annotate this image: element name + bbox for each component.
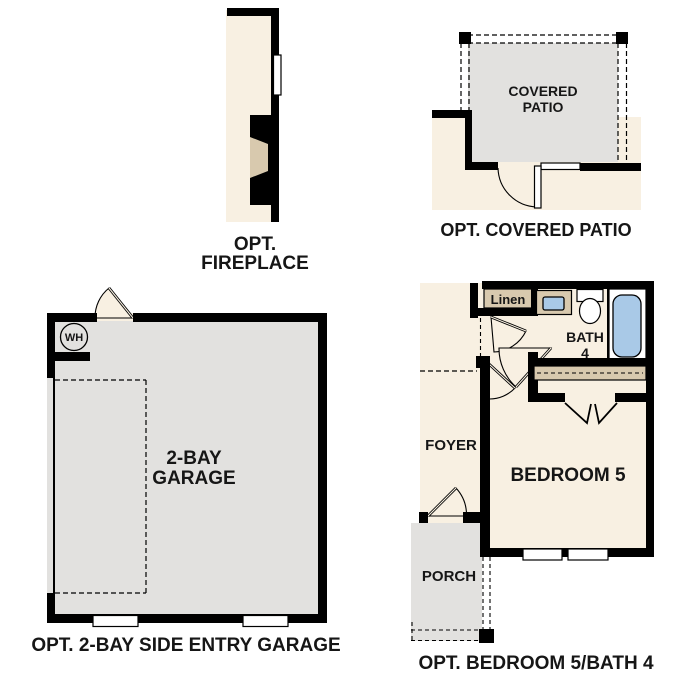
garage-right-wall: [318, 313, 327, 623]
patio-left-wall: [465, 110, 472, 167]
patio-bottom-wall: [580, 163, 641, 171]
water-heater-label: WH: [65, 332, 83, 344]
porch-post: [479, 629, 494, 643]
garage-caption: OPT. 2-BAY SIDE ENTRY GARAGE: [31, 635, 340, 656]
patio-bottom-wall: [465, 162, 498, 170]
wall-stub: [476, 356, 490, 368]
bedroom5-bath4-plan: Linen BATH 4: [411, 281, 654, 674]
garage-left-wall: [47, 313, 55, 378]
foyer-label: FOYER: [425, 437, 477, 454]
floor-plan-canvas: OPT. FIREPLACE COVERED PATIO OPT. COVERE…: [0, 0, 687, 687]
section-top-wall: [482, 281, 654, 289]
fireplace-caption-line1: OPT.: [234, 234, 276, 255]
foyer-wall-stub: [419, 512, 428, 523]
fireplace-caption-line2: FIREPLACE: [201, 253, 309, 274]
linen-label: Linen: [491, 292, 526, 307]
bath-bottom-wall: [528, 358, 650, 366]
bathtub-icon: [613, 295, 641, 357]
bedroom-top-wall: [528, 393, 565, 402]
patio-window-icon: [541, 163, 580, 170]
patio-post-right: [616, 32, 628, 44]
bedroom-caption: OPT. BEDROOM 5/BATH 4: [418, 653, 653, 674]
foyer-wall-stub: [463, 512, 482, 523]
bath-label-line1: BATH: [566, 329, 604, 345]
garage-plan: WH 2-BAY GARAGE OPT. 2-BAY SIDE ENTRY GA…: [31, 288, 340, 656]
garage-left-wall: [47, 593, 55, 623]
patio-post-left: [459, 32, 471, 44]
floor-plan-options-sheet: OPT. FIREPLACE COVERED PATIO OPT. COVERE…: [0, 0, 687, 687]
fireplace-window-icon: [274, 55, 282, 95]
garage-window-icon: [93, 616, 138, 627]
patio-caption: OPT. COVERED PATIO: [440, 220, 631, 240]
patio-left-wall: [432, 110, 467, 118]
bedroom-label: BEDROOM 5: [510, 465, 626, 486]
garage-room-label-line2: GARAGE: [152, 468, 235, 489]
patio-room-label-line2: PATIO: [523, 99, 564, 115]
water-heater-nook-wall: [47, 352, 90, 361]
bedroom-window-icon: [523, 549, 562, 560]
fireplace-top-wall: [227, 8, 276, 16]
garage-top-wall: [133, 313, 327, 322]
garage-room-label-line1: 2-BAY: [166, 448, 222, 469]
porch-label: PORCH: [422, 568, 476, 585]
hall-wall-segment: [470, 283, 478, 318]
garage-left-wall-thin: [53, 378, 55, 593]
patio-room-label-line1: COVERED: [508, 83, 577, 99]
tub-divider-wall: [607, 289, 609, 360]
bedroom-top-wall: [615, 393, 646, 402]
sink-basin-icon: [543, 297, 564, 310]
toilet-bowl-icon: [580, 299, 601, 324]
covered-patio-plan: COVERED PATIO OPT. COVERED PATIO: [432, 32, 641, 240]
patio-door-leaf-icon: [535, 166, 542, 208]
linen-bottom-wall: [478, 308, 533, 316]
fireplace-plan: OPT. FIREPLACE: [201, 8, 309, 274]
firebox-icon: [250, 137, 268, 178]
section-right-wall: [646, 281, 654, 557]
bedroom-window-icon: [568, 549, 608, 560]
foyer-bedroom-wall: [480, 366, 490, 557]
garage-window-icon: [243, 616, 288, 627]
